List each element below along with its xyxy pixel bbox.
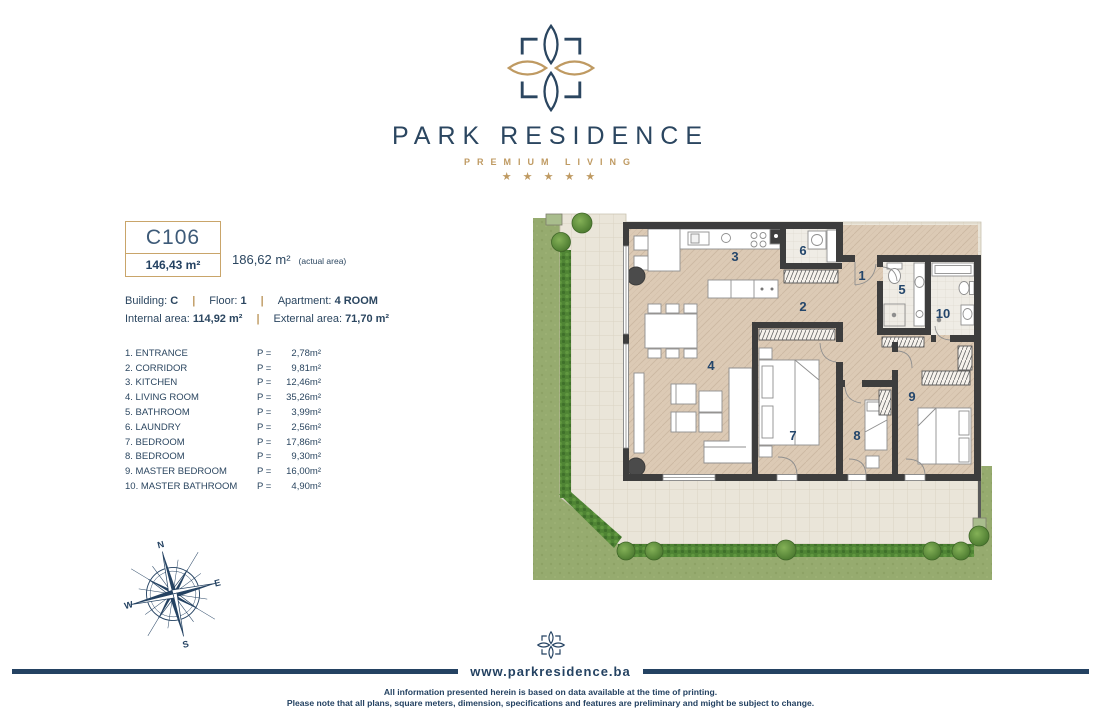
room-area: 9,30m² (277, 451, 321, 462)
actual-area-row: 186,62 m² (actual area) (232, 252, 346, 267)
unit-code-box: C106 146,43 m² (125, 221, 221, 277)
disclaimer-line-1: All information presented herein is base… (287, 687, 814, 698)
plant (627, 267, 645, 285)
room-list-row: 4. LIVING ROOMP =35,26m² (125, 390, 340, 405)
room-area: 35,26m² (277, 392, 321, 403)
room-name: 6. LAUNDRY (125, 422, 257, 433)
nightstand (759, 446, 772, 457)
room-p-label: P = (257, 363, 277, 374)
brochure-page: PARK RESIDENCE PREMIUM LIVING ★ ★ ★ ★ ★ … (0, 0, 1101, 720)
room-area: 17,86m² (277, 437, 321, 448)
unit-area: 146,43 m² (126, 253, 220, 276)
separator: | (247, 295, 278, 307)
room-list-row: 6. LAUNDRYP =2,56m² (125, 420, 340, 435)
floor-plan: 1 2 3 4 5 6 7 8 9 10 (530, 210, 1002, 590)
plan-room-4: 4 (707, 358, 715, 373)
plan-room-9: 9 (908, 389, 915, 404)
separator: | (242, 313, 273, 325)
plan-room-7: 7 (789, 428, 796, 443)
internal-area-label: Internal area: (125, 313, 190, 325)
room-list-row: 3. KITCHENP =12,46m² (125, 376, 340, 391)
room-name: 4. LIVING ROOM (125, 392, 257, 403)
room-p-label: P = (257, 451, 277, 462)
bathtub (932, 263, 974, 276)
plan-room-2: 2 (799, 299, 806, 314)
internal-area-value: 114,92 m² (193, 313, 243, 325)
room-name: 9. MASTER BEDROOM (125, 466, 257, 477)
terrace-boundary-wall (978, 478, 981, 522)
kitchen-cabinet (648, 229, 680, 271)
armchair (671, 412, 696, 432)
unit-code: C106 (126, 222, 220, 253)
plan-room-5: 5 (898, 282, 905, 297)
building-value: C (170, 295, 178, 307)
room-list-row: 7. BEDROOMP =17,86m² (125, 435, 340, 450)
separator: | (178, 295, 209, 307)
room-list-row: 9. MASTER BEDROOMP =16,00m² (125, 464, 340, 479)
building-label: Building: (125, 295, 167, 307)
plan-room-6: 6 (799, 243, 806, 258)
kitchen-island (708, 280, 778, 298)
compass-north-label: N (156, 539, 165, 550)
footer: www.parkresidence.ba All information pre… (0, 630, 1101, 709)
brand-stars: ★ ★ ★ ★ ★ (502, 170, 600, 183)
room-name: 3. KITCHEN (125, 377, 257, 388)
room-name: 1. ENTRANCE (125, 348, 257, 359)
room-area: 3,99m² (277, 407, 321, 418)
website-url: www.parkresidence.ba (458, 664, 642, 679)
room-area: 9,81m² (277, 363, 321, 374)
external-area-label: External area: (274, 313, 342, 325)
room-p-label: P = (257, 407, 277, 418)
coffee-table (699, 391, 722, 412)
room-list: 1. ENTRANCEP =2,78m² 2. CORRIDORP =9,81m… (125, 346, 340, 494)
brand-header: PARK RESIDENCE PREMIUM LIVING ★ ★ ★ ★ ★ (0, 20, 1101, 183)
room-list-row: 2. CORRIDORP =9,81m² (125, 361, 340, 376)
footer-logo-icon (536, 630, 566, 660)
room-p-label: P = (257, 481, 277, 492)
disclaimer-line-2: Please note that all plans, square meter… (287, 698, 814, 709)
bath-counter (914, 263, 925, 326)
room-area: 12,46m² (277, 377, 321, 388)
room-list-row: 10. MASTER BATHROOMP =4,90m² (125, 479, 340, 494)
room-list-row: 5. BATHROOMP =3,99m² (125, 405, 340, 420)
room-p-label: P = (257, 392, 277, 403)
area-info-line: Internal area: 114,92 m² | External area… (125, 313, 389, 325)
room-name: 5. BATHROOM (125, 407, 257, 418)
plan-room-1: 1 (858, 268, 865, 283)
room-p-label: P = (257, 377, 277, 388)
planter (546, 214, 562, 225)
floor-label: Floor: (209, 295, 237, 307)
room-name: 7. BEDROOM (125, 437, 257, 448)
room-name: 10. MASTER BATHROOM (125, 481, 257, 492)
room-p-label: P = (257, 348, 277, 359)
compass-west-label: W (123, 599, 134, 611)
room-name: 2. CORRIDOR (125, 363, 257, 374)
website-row: www.parkresidence.ba (0, 664, 1101, 679)
room-area: 2,56m² (277, 422, 321, 433)
disclaimer: All information presented herein is base… (287, 687, 814, 709)
external-area-value: 71,70 m² (345, 313, 389, 325)
room-list-row: 1. ENTRANCEP =2,78m² (125, 346, 340, 361)
room-p-label: P = (257, 437, 277, 448)
armchair (671, 384, 696, 404)
room-p-label: P = (257, 422, 277, 433)
building-info-line: Building: C | Floor: 1 | Apartment: 4 RO… (125, 295, 378, 307)
actual-area-note: (actual area) (299, 256, 347, 266)
plan-room-10: 10 (936, 306, 950, 321)
dining-table (645, 314, 697, 348)
brand-logo-icon (500, 20, 602, 116)
plant (627, 458, 645, 476)
plan-room-3: 3 (731, 249, 738, 264)
apartment-label: Apartment: (278, 295, 332, 307)
footer-bar-right (643, 669, 1089, 674)
room-p-label: P = (257, 466, 277, 477)
coffee-table (699, 413, 722, 432)
brand-name: PARK RESIDENCE (392, 122, 709, 151)
nightstand (759, 348, 772, 359)
compass-east-label: E (213, 577, 221, 588)
room-area: 4,90m² (277, 481, 321, 492)
plan-room-8: 8 (853, 428, 860, 443)
actual-area-value: 186,62 m² (232, 252, 291, 267)
apartment-value: 4 ROOM (335, 295, 378, 307)
tv-stand (634, 373, 644, 453)
washing-machine (808, 231, 826, 249)
footer-bar-left (12, 669, 458, 674)
room-area: 16,00m² (277, 466, 321, 477)
room-name: 8. BEDROOM (125, 451, 257, 462)
room-area: 2,78m² (277, 348, 321, 359)
side-table (866, 456, 879, 468)
brand-tagline: PREMIUM LIVING (464, 157, 637, 167)
toilet (970, 282, 975, 295)
room-list-row: 8. BEDROOMP =9,30m² (125, 450, 340, 465)
